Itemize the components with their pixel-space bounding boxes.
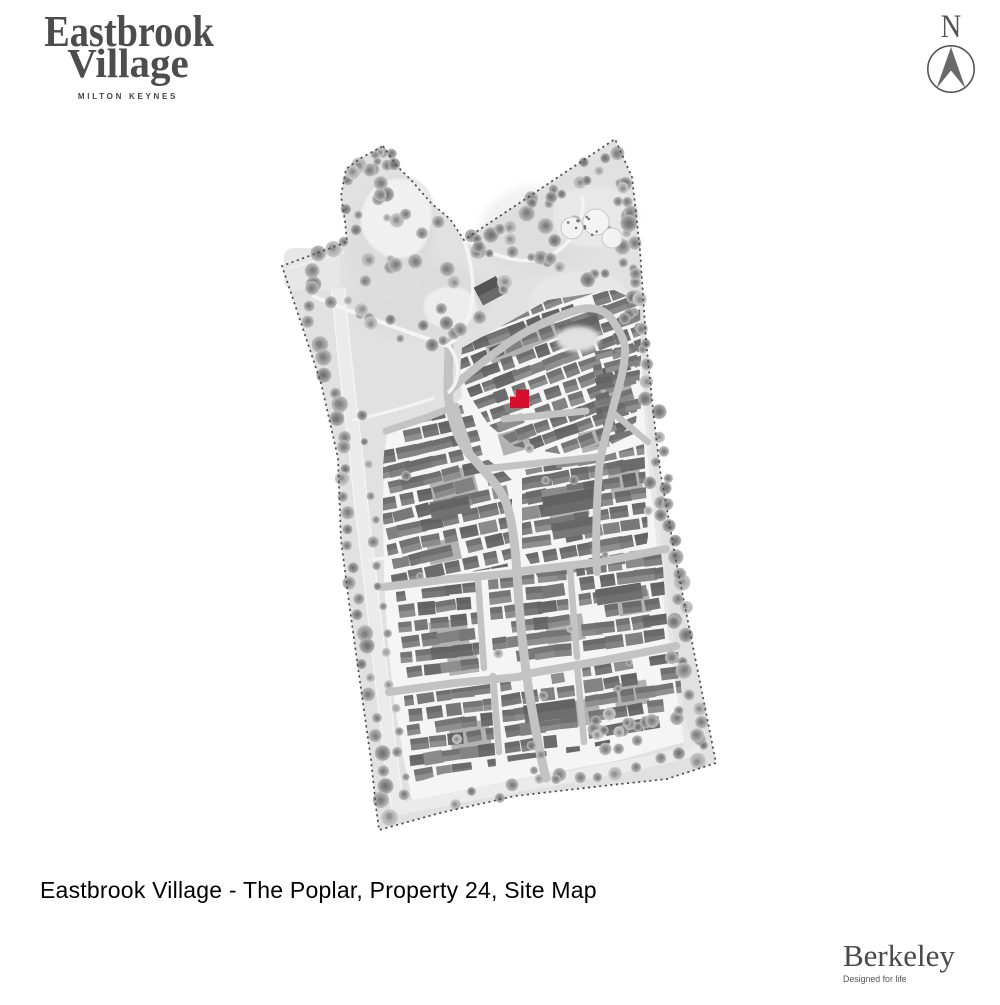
svg-text:N: N [941,8,961,44]
